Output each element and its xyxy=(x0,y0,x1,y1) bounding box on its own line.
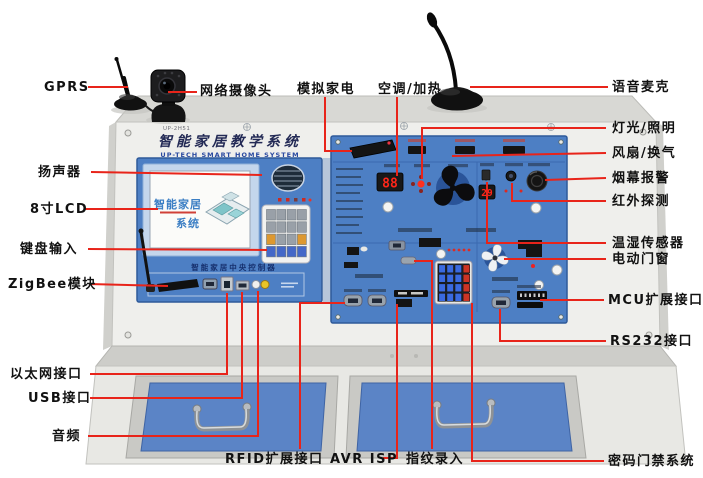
screen-accent-bar xyxy=(160,212,196,214)
desk xyxy=(86,346,686,464)
callout-rfid: RFID扩展接口 xyxy=(225,452,324,467)
access-keypad xyxy=(435,261,472,304)
callout-usb: USB接口 xyxy=(28,391,91,406)
panel-title: 智能家居教学系统 xyxy=(158,133,302,150)
screw xyxy=(125,332,131,338)
callout-door-window: 电动门窗 xyxy=(612,252,670,267)
callout-zigbee: ZigBee模块 xyxy=(8,277,97,292)
smoke-detector xyxy=(527,171,547,191)
avr-isp-header xyxy=(396,299,412,307)
callout-network-camera: 网络摄像头 xyxy=(200,84,273,99)
panel-button xyxy=(531,203,541,213)
ac-readout: 88 xyxy=(382,177,398,192)
usb-port xyxy=(236,281,249,290)
callout-gprs: GPRS xyxy=(44,80,90,95)
gprs-antenna xyxy=(114,57,147,111)
callout-lighting: 灯光/照明 xyxy=(612,121,676,136)
console-caption: 智能家居中央控制器 xyxy=(191,262,277,272)
callout-simulated-appliance: 模拟家电 xyxy=(297,82,355,97)
callout-fingerprint: 指纹录入 xyxy=(406,452,464,467)
right-experiment-panel: 88 29 xyxy=(331,136,567,323)
callout-infrared: 红外探测 xyxy=(612,194,670,209)
callout-avr-isp: AVR ISP xyxy=(330,452,398,467)
callout-smoke-alarm: 烟幕报警 xyxy=(612,171,670,186)
callout-audio: 音频 xyxy=(52,429,81,444)
network-camera xyxy=(146,70,186,122)
callout-speaker: 扬声器 xyxy=(38,165,82,180)
lcd-display: 智能家居 系统 xyxy=(143,164,259,256)
callout-temp-humidity: 温湿传感器 xyxy=(612,236,685,251)
seven-segment-display: 88 xyxy=(377,173,403,192)
panel-button xyxy=(383,202,393,212)
annotated-equipment-figure: UP-2H51 智能家居教学系统 UP-TECH SMART HOME SYST… xyxy=(0,0,703,478)
leader-keypad-input xyxy=(88,249,267,250)
callout-ethernet: 以太网接口 xyxy=(10,367,83,382)
screw xyxy=(125,130,131,136)
drawer-left xyxy=(126,376,338,458)
instruction-text-block xyxy=(336,168,363,234)
callout-fan-ventilation: 风扇/换气 xyxy=(612,146,676,161)
left-console-panel: 智能家居 系统 xyxy=(137,158,331,303)
callout-voice-mic: 语音麦克 xyxy=(612,80,670,95)
speaker-grille xyxy=(272,165,304,191)
panel-button xyxy=(437,250,446,259)
callout-ac-heating: 空调/加热 xyxy=(378,82,442,97)
screen-title-line1: 智能家居 xyxy=(154,197,202,211)
vga-port xyxy=(203,279,217,289)
console-keypad xyxy=(262,205,310,263)
drawer-right xyxy=(346,376,586,458)
callout-lcd: 8寸LCD xyxy=(30,202,88,217)
device-illustration: UP-2H51 智能家居教学系统 UP-TECH SMART HOME SYST… xyxy=(0,0,703,478)
callout-password-access: 密码门禁系统 xyxy=(608,454,695,469)
ethernet-port xyxy=(221,277,233,291)
panel-button xyxy=(552,265,562,275)
callout-keypad-input: 键盘输入 xyxy=(20,242,78,257)
model-number: UP-2H51 xyxy=(163,126,190,132)
callout-mcu: MCU扩展接口 xyxy=(608,293,703,308)
callout-rs232: RS232接口 xyxy=(610,334,693,349)
screen-title-line2: 系统 xyxy=(176,216,200,230)
fingerprint-connector xyxy=(401,257,416,264)
